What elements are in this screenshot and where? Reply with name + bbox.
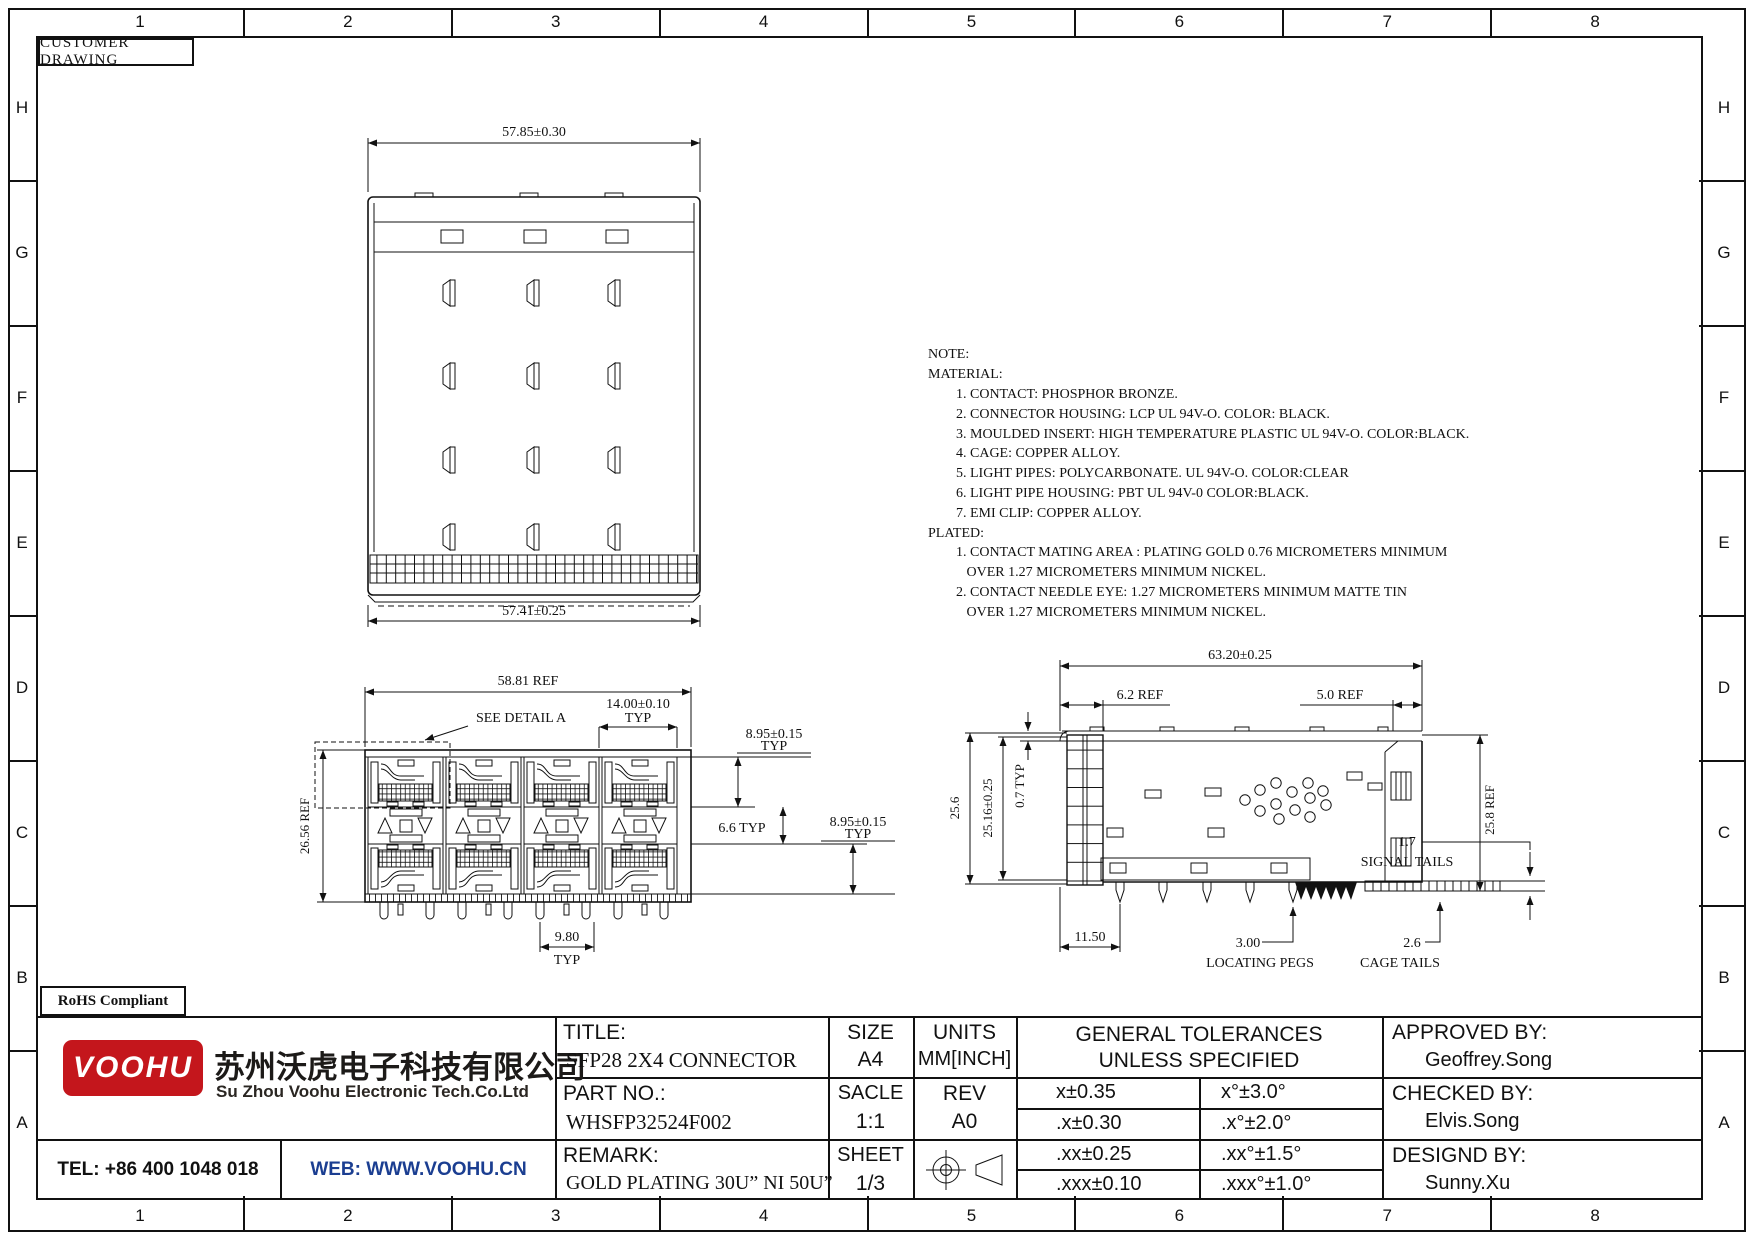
part-no-value: WHSFP32524F002 bbox=[566, 1110, 732, 1135]
grid-col-label: 7 bbox=[1375, 1206, 1399, 1226]
grid-col-label: 6 bbox=[1167, 12, 1191, 32]
front-view-drawing: 58.81 REF SEE DETAIL A 14.00±0.10 TYP 8.… bbox=[255, 640, 895, 970]
dim-label: 5.0 REF bbox=[1317, 688, 1364, 703]
sheet-label: SHEET bbox=[826, 1144, 915, 1167]
grid-tick bbox=[8, 1050, 36, 1052]
grid-tick bbox=[1699, 905, 1744, 907]
grid-row-label: E bbox=[1713, 533, 1735, 553]
sheet-value: 1/3 bbox=[828, 1172, 913, 1196]
grid-tick bbox=[867, 1196, 869, 1232]
tolerance-title-1: GENERAL TOLERANCES bbox=[1016, 1023, 1382, 1047]
grid-tick bbox=[451, 8, 453, 36]
designed-by-label: DESIGND BY: bbox=[1392, 1144, 1526, 1168]
title-value: SFP28 2X4 CONNECTOR bbox=[566, 1048, 797, 1073]
grid-row-label: B bbox=[11, 968, 33, 988]
callout-label: CAGE TAILS bbox=[1360, 956, 1440, 971]
grid-tick bbox=[1490, 1196, 1492, 1232]
note-line: PLATED: bbox=[928, 524, 1469, 544]
side-view-drawing: 63.20±0.25 6.2 REF 5.0 REF 25.6 25.16±0.… bbox=[840, 600, 1580, 990]
grid-col-label: 2 bbox=[336, 1206, 360, 1226]
grid-tick bbox=[8, 905, 36, 907]
dim-label: 6.2 REF bbox=[1117, 688, 1164, 703]
part-no-label: PART NO.: bbox=[563, 1082, 666, 1106]
checked-by-label: CHECKED BY: bbox=[1392, 1082, 1533, 1106]
notes-block: NOTE:MATERIAL: 1. CONTACT: PHOSPHOR BRON… bbox=[928, 286, 1469, 623]
dim-label: 0.7 TYP bbox=[1012, 764, 1027, 808]
company-logo: VOOHU bbox=[63, 1040, 203, 1096]
rev-label: REV bbox=[913, 1082, 1016, 1106]
dim-label: 11.50 bbox=[1075, 930, 1106, 945]
note-line: OVER 1.27 MICROMETERS MINIMUM NICKEL. bbox=[928, 563, 1469, 583]
dim-label: 3.00 bbox=[1236, 936, 1261, 951]
grid-row-label: H bbox=[1713, 98, 1735, 118]
grid-tick bbox=[659, 1196, 661, 1232]
callout-label: SIGNAL TAILS bbox=[1361, 855, 1454, 870]
units-label: UNITS bbox=[913, 1021, 1016, 1045]
tolerance-angular: .x°±2.0° bbox=[1199, 1108, 1382, 1139]
note-line: NOTE: bbox=[928, 345, 1469, 365]
approved-by-value: Geoffrey.Song bbox=[1425, 1049, 1552, 1072]
company-name-en: Su Zhou Voohu Electronic Tech.Co.Ltd bbox=[216, 1082, 529, 1102]
grid-row-label: D bbox=[11, 678, 33, 698]
designed-by-value: Sunny.Xu bbox=[1425, 1172, 1510, 1195]
grid-row-label: G bbox=[11, 243, 33, 263]
tolerance-linear: .xxx±0.10 bbox=[1016, 1169, 1199, 1200]
dim-label: TYP bbox=[554, 953, 581, 968]
mounting-holes bbox=[1240, 778, 1331, 824]
dim-label: 25.8 REF bbox=[1482, 785, 1497, 835]
grid-col-label: 3 bbox=[544, 1206, 568, 1226]
note-line: 4. CAGE: COPPER ALLOY. bbox=[928, 444, 1469, 464]
company-tel: TEL: +86 400 1048 018 bbox=[36, 1139, 280, 1200]
grid-tick bbox=[243, 1196, 245, 1232]
dim-label: 1.7 bbox=[1398, 835, 1416, 850]
note-line: 2. CONTACT NEEDLE EYE: 1.27 MICROMETERS … bbox=[928, 583, 1469, 603]
dim-label: 57.85±0.30 bbox=[502, 125, 566, 140]
note-line: 5. LIGHT PIPES: POLYCARBONATE. UL 94V-O.… bbox=[928, 464, 1469, 484]
front-view-body bbox=[315, 742, 691, 919]
drawing-type-label: CUSTOMER DRAWING bbox=[38, 38, 194, 66]
grid-col-label: 2 bbox=[336, 12, 360, 32]
tolerance-row: .x±0.30 .x°±2.0° bbox=[1016, 1108, 1382, 1139]
dim-label: 6.6 TYP bbox=[718, 821, 765, 836]
grid-col-label: 1 bbox=[128, 1206, 152, 1226]
note-line: 1. CONTACT: PHOSPHOR BRONZE. bbox=[928, 385, 1469, 405]
tolerance-row: .xxx±0.10 .xxx°±1.0° bbox=[1016, 1169, 1382, 1200]
note-line: 7. EMI CLIP: COPPER ALLOY. bbox=[928, 504, 1469, 524]
grid-row-label: B bbox=[1713, 968, 1735, 988]
top-view-drawing: 57.85±0.30 57.41±0.25 bbox=[320, 100, 740, 640]
dim-label: 63.20±0.25 bbox=[1208, 648, 1272, 663]
size-value: A4 bbox=[828, 1048, 913, 1072]
rev-value: A0 bbox=[913, 1110, 1016, 1134]
grid-row-label: F bbox=[1713, 388, 1735, 408]
dim-label: 58.81 REF bbox=[498, 674, 559, 689]
grid-tick bbox=[1282, 1196, 1284, 1232]
dim-label: 25.6 bbox=[947, 796, 962, 819]
grid-tick bbox=[8, 760, 36, 762]
dim-label: 26.56 REF bbox=[297, 798, 312, 854]
grid-tick bbox=[1699, 1050, 1744, 1052]
dim-label: 25.16±0.25 bbox=[980, 778, 995, 837]
grid-tick bbox=[1490, 8, 1492, 36]
grid-col-label: 5 bbox=[959, 1206, 983, 1226]
grid-row-label: G bbox=[1713, 243, 1735, 263]
grid-col-label: 3 bbox=[544, 12, 568, 32]
note-line: MATERIAL: bbox=[928, 365, 1469, 385]
scale-label: SACLE bbox=[826, 1082, 915, 1105]
side-view-body bbox=[1060, 727, 1545, 902]
dim-label: 9.80 bbox=[555, 930, 580, 945]
projection-symbol-icon bbox=[916, 1143, 1014, 1197]
grid-tick bbox=[1699, 615, 1744, 617]
dim-label: TYP bbox=[761, 739, 788, 754]
grid-row-label: A bbox=[11, 1113, 33, 1133]
tolerance-title-2: UNLESS SPECIFIED bbox=[1016, 1049, 1382, 1073]
grid-tick bbox=[8, 470, 36, 472]
rohs-label: RoHS Compliant bbox=[40, 986, 186, 1016]
note-line: 1. CONTACT MATING AREA : PLATING GOLD 0.… bbox=[928, 543, 1469, 563]
grid-tick bbox=[1074, 1196, 1076, 1232]
tolerance-linear: .x±0.30 bbox=[1016, 1108, 1199, 1139]
grid-tick bbox=[8, 615, 36, 617]
tolerance-linear: x±0.35 bbox=[1016, 1077, 1199, 1108]
remark-value: GOLD PLATING 30U” NI 50U” bbox=[566, 1172, 833, 1195]
tolerance-table: x±0.35 x°±3.0° .x±0.30 .x°±2.0° .xx±0.25… bbox=[1016, 1077, 1382, 1200]
cage-tails-shape bbox=[1295, 882, 1357, 900]
note-line: 3. MOULDED INSERT: HIGH TEMPERATURE PLAS… bbox=[928, 425, 1469, 445]
grid-tick bbox=[867, 8, 869, 36]
grid-tick bbox=[1699, 180, 1744, 182]
note-line: OVER 1.27 MICROMETERS MINIMUM NICKEL. bbox=[928, 603, 1469, 623]
company-name-cn: 苏州沃虎电子科技有限公司 bbox=[214, 1042, 586, 1087]
grid-tick bbox=[1282, 8, 1284, 36]
company-web: WEB: WWW.VOOHU.CN bbox=[282, 1139, 555, 1200]
top-view-body bbox=[368, 193, 700, 606]
size-label: SIZE bbox=[828, 1021, 913, 1045]
title-label: TITLE: bbox=[563, 1021, 626, 1045]
grid-tick bbox=[1699, 760, 1744, 762]
grid-tick bbox=[1699, 325, 1744, 327]
dim-label: 2.6 bbox=[1403, 936, 1421, 951]
approved-by-label: APPROVED BY: bbox=[1392, 1021, 1547, 1045]
grid-row-label: F bbox=[11, 388, 33, 408]
grid-tick bbox=[1074, 8, 1076, 36]
grid-tick bbox=[243, 8, 245, 36]
page: CUSTOMER DRAWING RoHS Compliant 57.85±0.… bbox=[0, 0, 1754, 1240]
callout-label: LOCATING PEGS bbox=[1206, 956, 1314, 971]
grid-row-label: A bbox=[1713, 1113, 1735, 1133]
grid-col-label: 6 bbox=[1167, 1206, 1191, 1226]
tolerance-angular: .xxx°±1.0° bbox=[1199, 1169, 1382, 1200]
grid-col-label: 5 bbox=[959, 12, 983, 32]
grid-col-label: 4 bbox=[752, 1206, 776, 1226]
dim-label: TYP bbox=[625, 711, 652, 726]
grid-col-label: 1 bbox=[128, 12, 152, 32]
tolerance-linear: .xx±0.25 bbox=[1016, 1139, 1199, 1170]
scale-value: 1:1 bbox=[828, 1110, 913, 1134]
tolerance-row: x±0.35 x°±3.0° bbox=[1016, 1077, 1382, 1108]
grid-col-label: 8 bbox=[1583, 12, 1607, 32]
grid-col-label: 7 bbox=[1375, 12, 1399, 32]
grid-tick bbox=[8, 180, 36, 182]
units-value: MM[INCH] bbox=[913, 1048, 1016, 1071]
grid-tick bbox=[1699, 470, 1744, 472]
grid-col-label: 8 bbox=[1583, 1206, 1607, 1226]
grid-col-label: 4 bbox=[752, 12, 776, 32]
grid-row-label: H bbox=[11, 98, 33, 118]
note-line: 6. LIGHT PIPE HOUSING: PBT UL 94V-0 COLO… bbox=[928, 484, 1469, 504]
grid-row-label: D bbox=[1713, 678, 1735, 698]
remark-label: REMARK: bbox=[563, 1144, 659, 1168]
grid-tick bbox=[8, 325, 36, 327]
tolerance-angular: .xx°±1.5° bbox=[1199, 1139, 1382, 1170]
side-view-dimensions: 63.20±0.25 6.2 REF 5.0 REF 25.6 25.16±0.… bbox=[947, 648, 1530, 971]
grid-tick bbox=[451, 1196, 453, 1232]
checked-by-value: Elvis.Song bbox=[1425, 1110, 1520, 1133]
dim-label: 14.00±0.10 bbox=[606, 697, 670, 712]
grid-row-label: C bbox=[11, 823, 33, 843]
tolerance-row: .xx±0.25 .xx°±1.5° bbox=[1016, 1139, 1382, 1170]
tolerance-angular: x°±3.0° bbox=[1199, 1077, 1382, 1108]
grid-tick bbox=[659, 8, 661, 36]
detail-callout-label: SEE DETAIL A bbox=[476, 711, 567, 726]
grid-row-label: E bbox=[11, 533, 33, 553]
note-line: 2. CONNECTOR HOUSING: LCP UL 94V-O. COLO… bbox=[928, 405, 1469, 425]
grid-row-label: C bbox=[1713, 823, 1735, 843]
